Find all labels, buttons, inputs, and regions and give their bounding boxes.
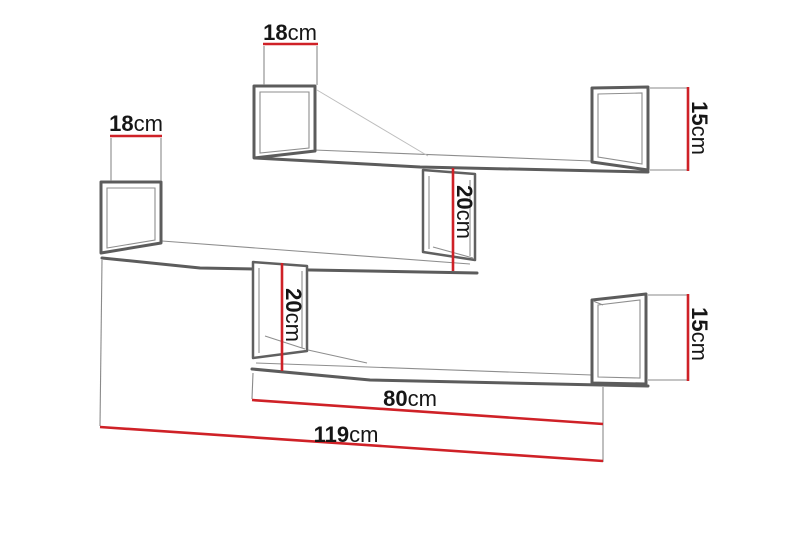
bottom-shelf-right-panel: [592, 294, 646, 384]
dimension-label-119cm: 119cm: [314, 422, 379, 447]
top-shelf-left-panel: [254, 86, 315, 158]
dimension-label-80cm: 80cm: [383, 386, 437, 411]
dimension-label-15cm-bottom-right: 15cm: [687, 307, 712, 361]
dimension-label-18cm-top: 18cm: [263, 20, 317, 45]
shelf-dimension-diagram: 18cm 18cm 15cm 20cm 20cm: [0, 0, 800, 533]
middle-shelf-left-panel: [101, 182, 161, 253]
dimension-label-20cm-lower: 20cm: [281, 288, 306, 342]
dimension-label-15cm-top-right: 15cm: [687, 101, 712, 155]
dimension-label-18cm-left: 18cm: [109, 111, 163, 136]
diagram-canvas: 18cm 18cm 15cm 20cm 20cm: [0, 0, 800, 533]
dimension-label-20cm-upper: 20cm: [452, 185, 477, 239]
